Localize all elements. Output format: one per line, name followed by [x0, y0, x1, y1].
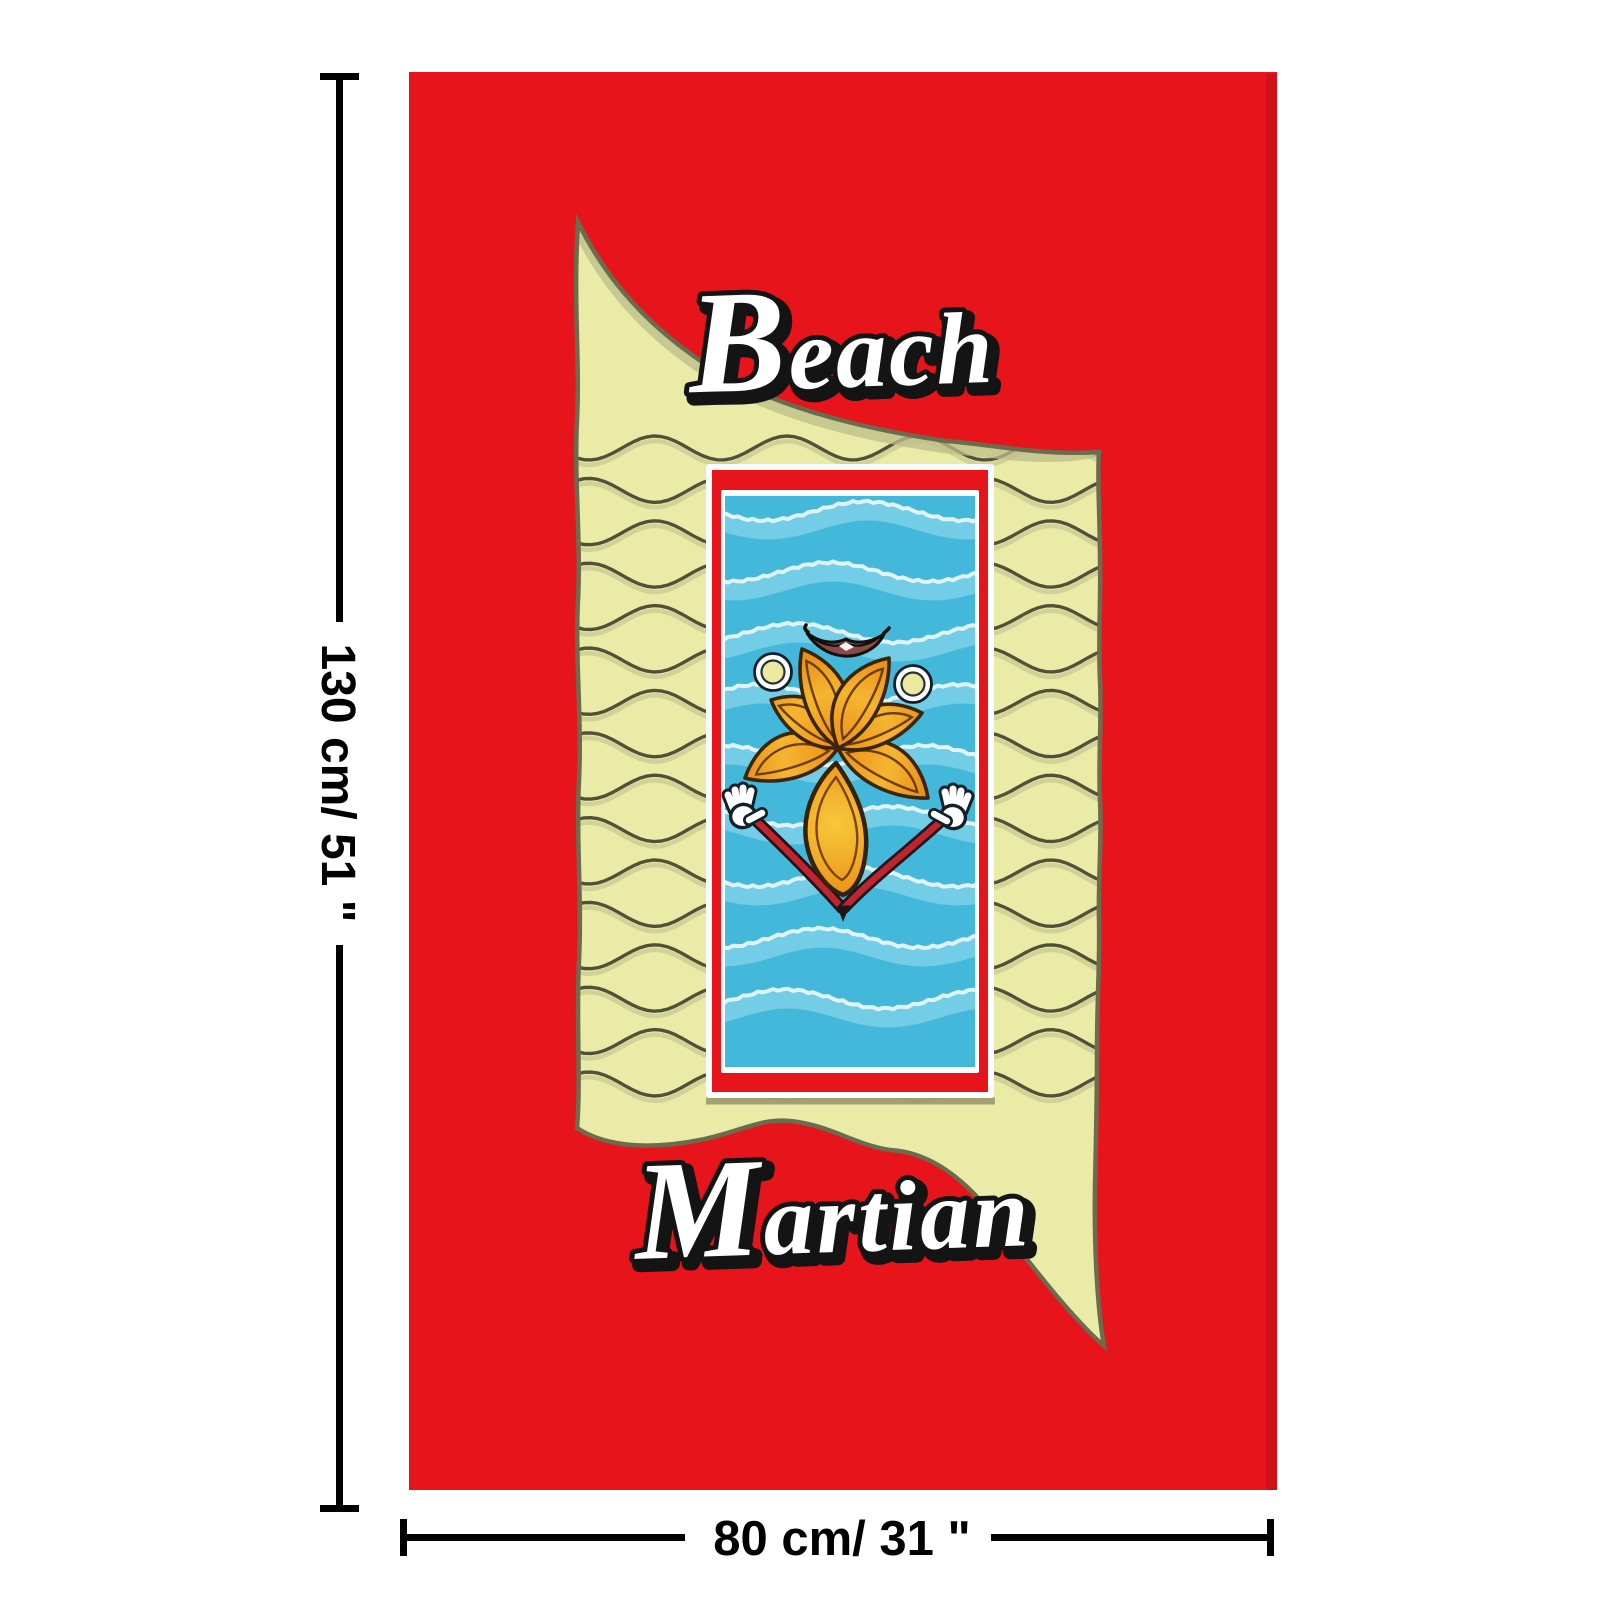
svg-text:130 cm/ 51 ": 130 cm/ 51 " [311, 644, 364, 923]
svg-text:80 cm/ 31 ": 80 cm/ 31 " [713, 1512, 971, 1566]
